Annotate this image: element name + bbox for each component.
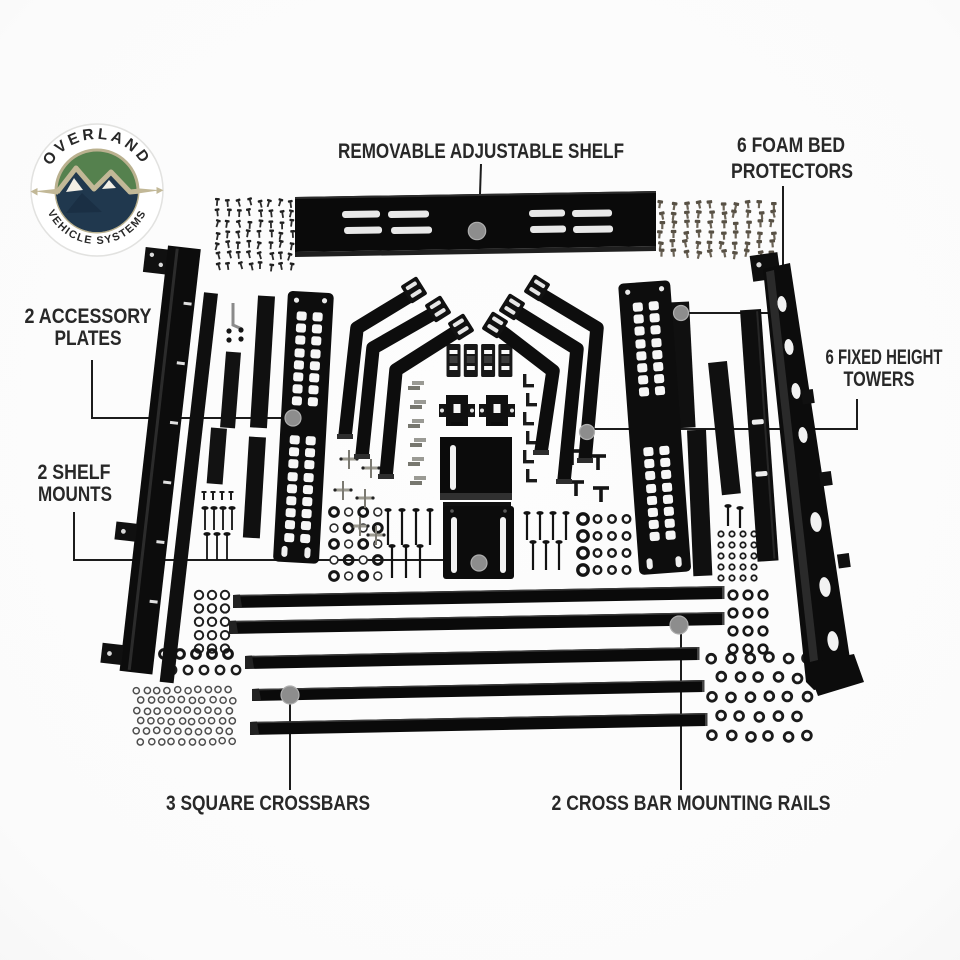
svg-text:2 SHELF: 2 SHELF [38, 460, 111, 484]
svg-text:6 FOAM BED: 6 FOAM BED [737, 133, 845, 157]
svg-text:6 FIXED HEIGHT: 6 FIXED HEIGHT [826, 345, 943, 369]
svg-text:2 ACCESSORY: 2 ACCESSORY [25, 304, 152, 328]
svg-text:PLATES: PLATES [55, 326, 122, 350]
svg-text:3 SQUARE CROSSBARS: 3 SQUARE CROSSBARS [166, 791, 370, 815]
svg-text:REMOVABLE ADJUSTABLE SHELF: REMOVABLE ADJUSTABLE SHELF [338, 139, 624, 163]
svg-text:TOWERS: TOWERS [844, 367, 915, 391]
svg-text:PROTECTORS: PROTECTORS [731, 159, 853, 183]
svg-text:MOUNTS: MOUNTS [38, 482, 112, 506]
svg-text:2 CROSS BAR MOUNTING RAILS: 2 CROSS BAR MOUNTING RAILS [552, 791, 831, 815]
